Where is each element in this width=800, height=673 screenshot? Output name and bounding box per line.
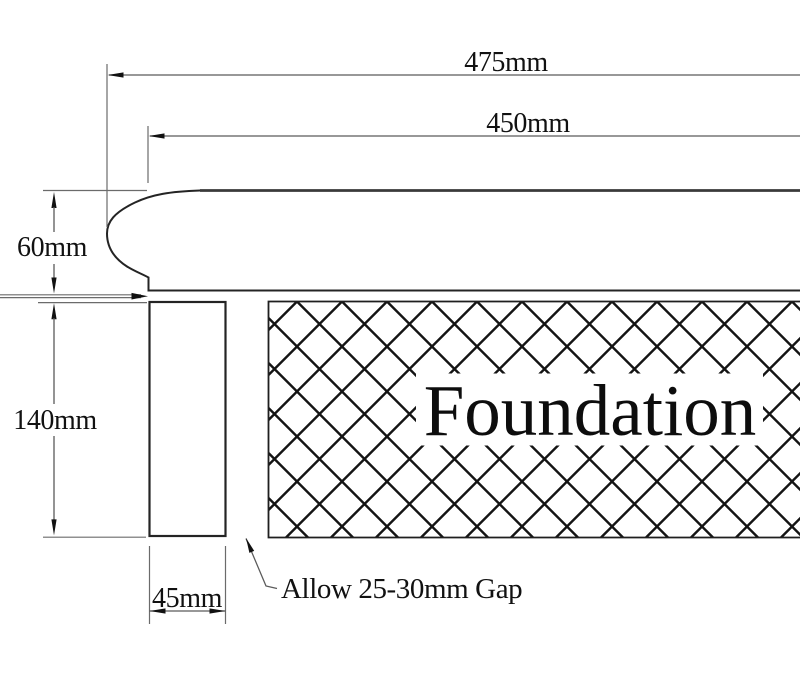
dimension-value: 45mm bbox=[152, 583, 223, 614]
coping-outline bbox=[107, 191, 800, 291]
drawing-canvas: Foundation 475mm 450mm 60mm bbox=[0, 0, 800, 673]
up-arrowhead bbox=[51, 303, 56, 319]
dimension-value: 475mm bbox=[464, 47, 548, 78]
dimension-value: 60mm bbox=[17, 232, 88, 263]
dimension-value: 140mm bbox=[13, 405, 97, 436]
foundation-block: Foundation bbox=[269, 302, 800, 538]
coping-stone bbox=[107, 191, 800, 291]
down-arrowhead bbox=[51, 278, 56, 294]
dimension-wall-height: 140mm bbox=[13, 303, 147, 538]
leader-arrowhead bbox=[246, 538, 254, 553]
level-marker bbox=[0, 293, 148, 300]
gap-annotation: Allow 25-30mm Gap bbox=[246, 538, 522, 605]
dimension-overall-width: 475mm bbox=[107, 47, 800, 227]
right-arrowhead bbox=[132, 293, 149, 300]
dimension-exposed-width: 450mm bbox=[148, 108, 800, 183]
dimension-wall-width: 45mm bbox=[150, 546, 226, 624]
dimension-value: 450mm bbox=[486, 108, 570, 139]
down-arrowhead bbox=[51, 519, 56, 535]
gap-note-label: Allow 25-30mm Gap bbox=[281, 573, 522, 605]
left-arrowhead bbox=[108, 72, 124, 77]
up-arrowhead bbox=[51, 192, 56, 208]
coping-detail-drawing: Foundation 475mm 450mm 60mm bbox=[0, 0, 800, 673]
wall-section bbox=[150, 302, 226, 536]
foundation-label: Foundation bbox=[424, 370, 757, 451]
left-arrowhead bbox=[149, 133, 165, 138]
